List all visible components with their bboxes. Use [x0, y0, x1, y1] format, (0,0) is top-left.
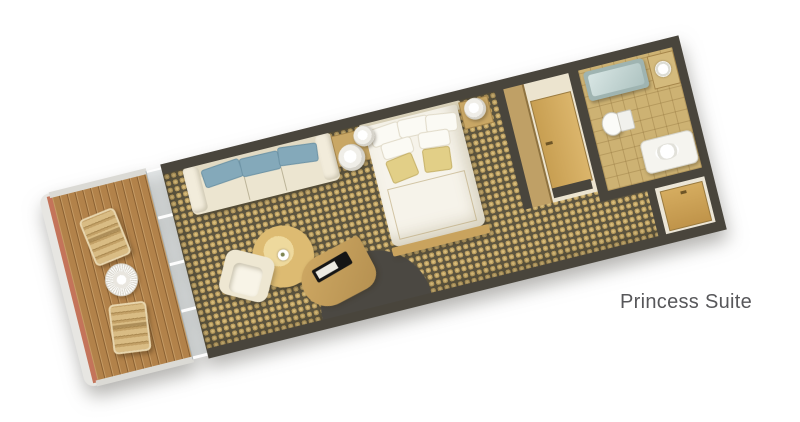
suite-label: Princess Suite [620, 291, 752, 314]
armchair-seat [228, 262, 264, 298]
chair-back-divider [113, 322, 147, 329]
sofa-seat-seam [281, 167, 288, 191]
sink-basin [653, 59, 672, 78]
flower-vase [277, 248, 290, 261]
chair-back-divider [88, 227, 121, 243]
sofa-seat-seam [244, 176, 251, 200]
gold-accent-pillow [422, 146, 453, 174]
floorplan-canvas: Princess Suite [0, 0, 800, 422]
princess-suite-floorplan [38, 35, 727, 389]
sofa-blue-cushion-3 [277, 142, 319, 166]
balcony-lounge-chair-2 [108, 301, 152, 355]
